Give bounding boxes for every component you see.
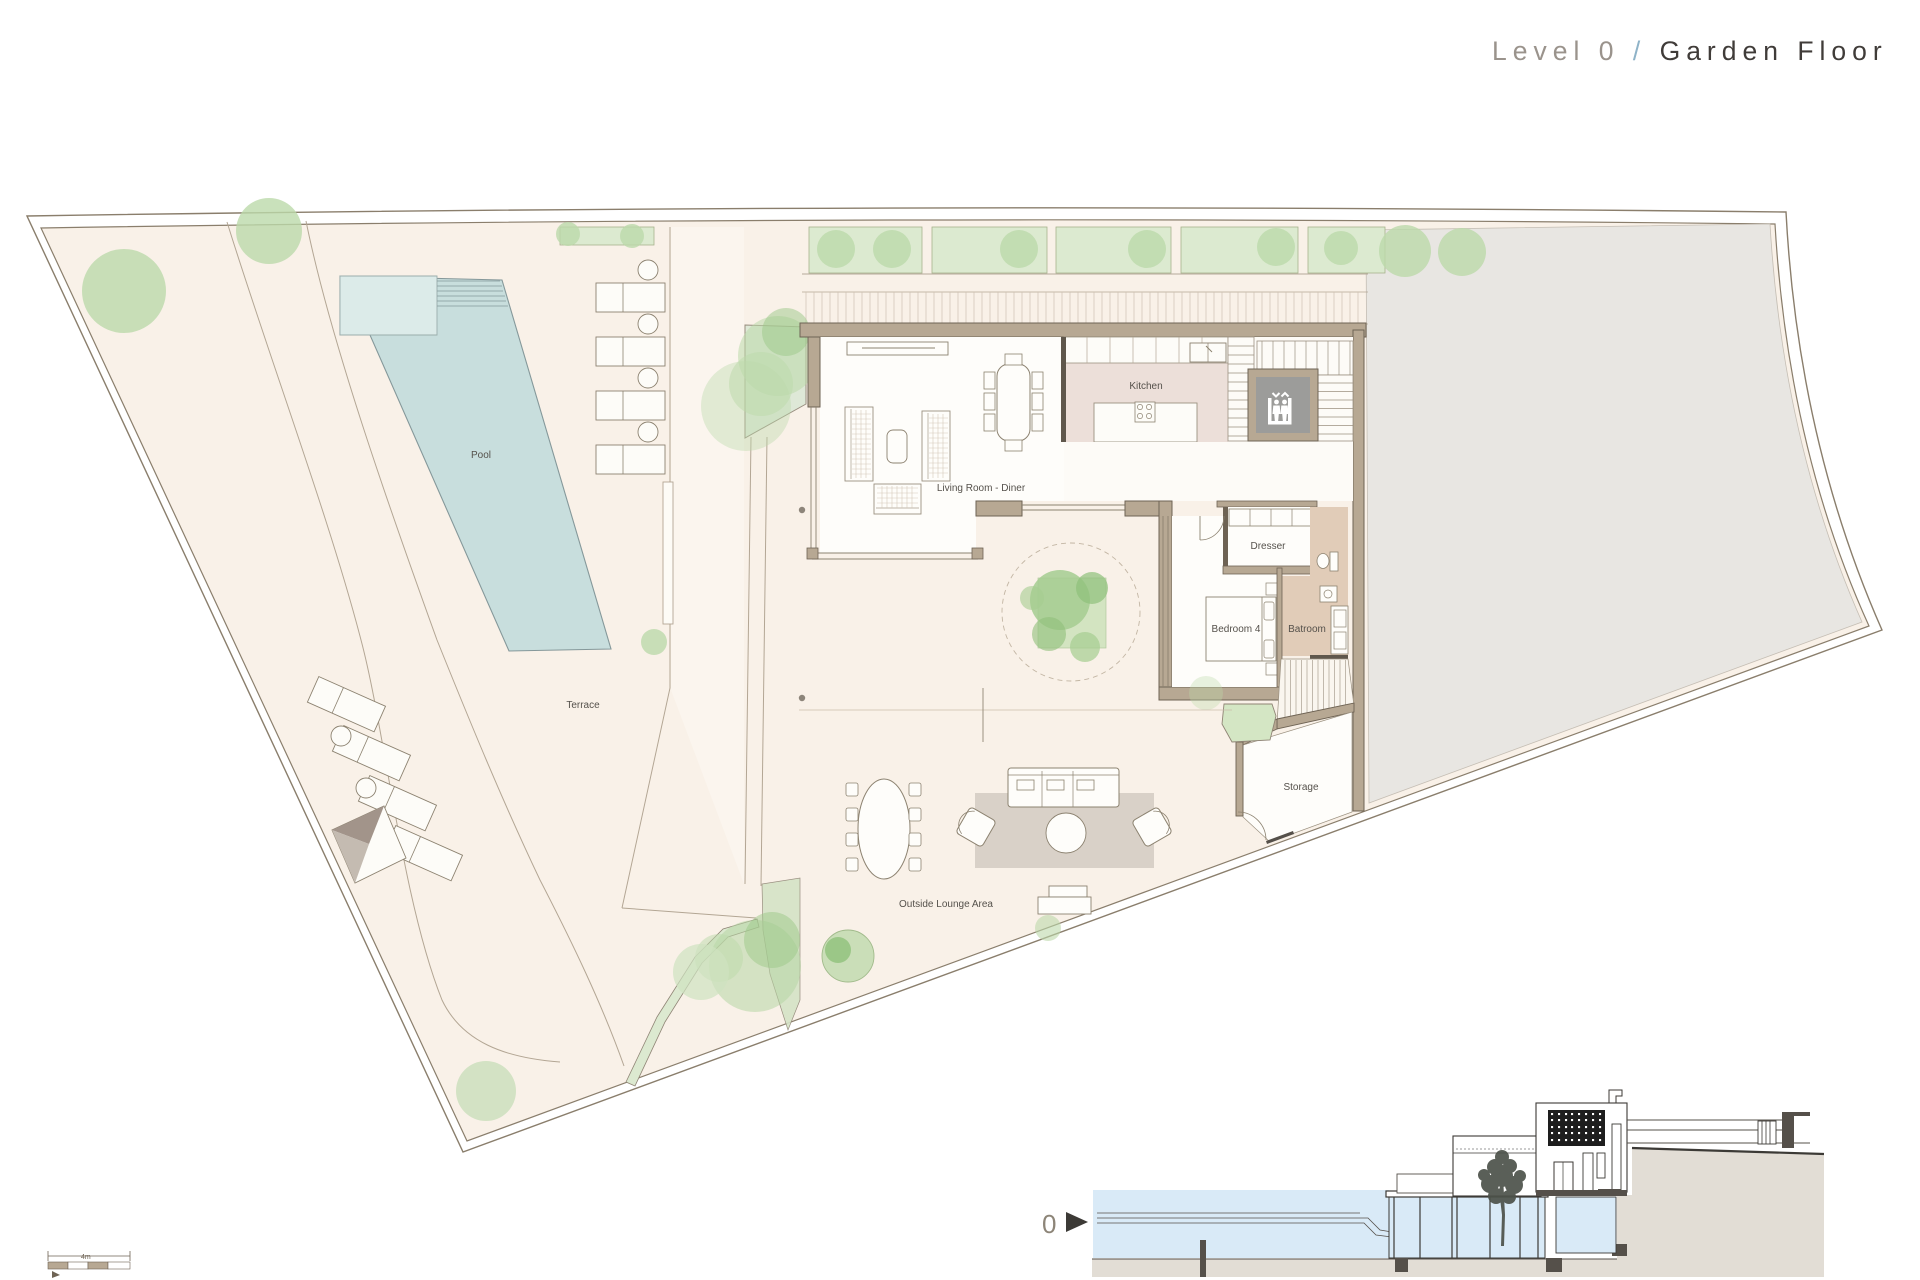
svg-text:Bedroom 4: Bedroom 4 [1212,624,1261,635]
svg-text:Terrace: Terrace [566,700,600,711]
svg-text:Level 0 / Garden Floor: Level 0 / Garden Floor [1492,36,1888,66]
svg-text:4m: 4m [81,1254,91,1261]
svg-text:Pool: Pool [471,450,491,461]
svg-text:Dresser: Dresser [1250,541,1286,552]
svg-text:Batroom: Batroom [1288,624,1326,635]
svg-text:Outside Lounge Area: Outside Lounge Area [899,899,993,910]
svg-text:Kitchen: Kitchen [1129,381,1162,392]
svg-text:Living Room - Diner: Living Room - Diner [937,483,1026,494]
svg-text:Storage: Storage [1283,782,1318,793]
svg-text:0: 0 [1042,1209,1056,1239]
